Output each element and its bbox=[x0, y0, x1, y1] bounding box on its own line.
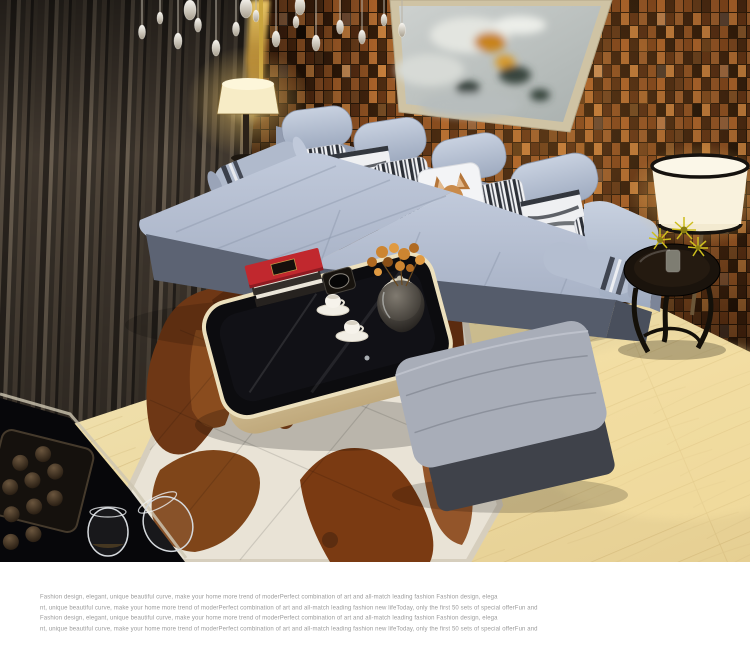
caption-line-3: Fashion design, elegant, unique beautifu… bbox=[40, 613, 538, 624]
living-room-photo bbox=[0, 0, 750, 562]
caption: Fashion design, elegant, unique beautifu… bbox=[40, 592, 750, 662]
caption-line-1: Fashion design, elegant, unique beautifu… bbox=[40, 592, 538, 603]
caption-line-2: nt, unique beautiful curve, make your ho… bbox=[40, 603, 538, 614]
living-room-scene bbox=[0, 0, 750, 562]
caption-line-4: nt, unique beautiful curve, make your ho… bbox=[40, 624, 538, 635]
